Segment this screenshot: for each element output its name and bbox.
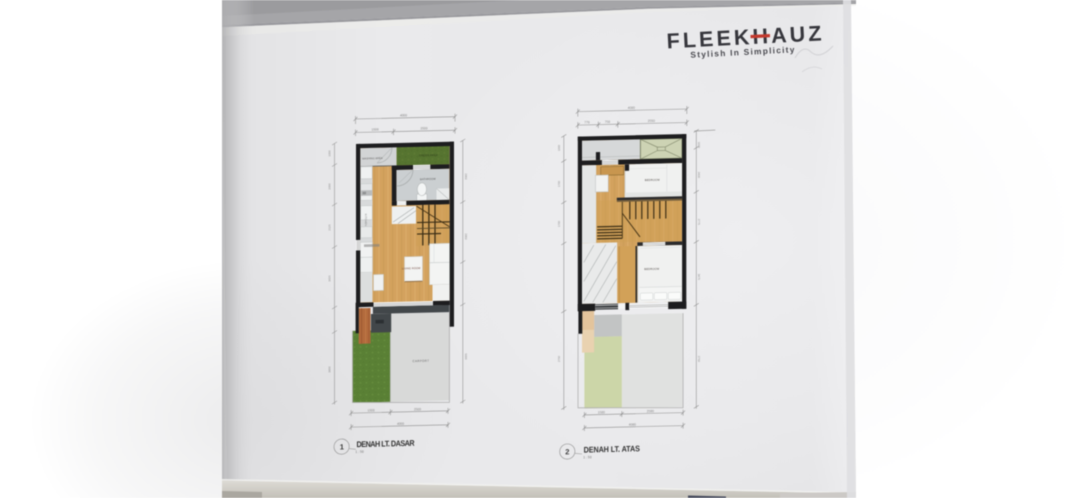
svg-text:2775: 2775 — [697, 219, 701, 226]
svg-text:1500: 1500 — [598, 410, 605, 414]
svg-text:DENAH LT. DASAR: DENAH LT. DASAR — [357, 438, 415, 449]
svg-text:750: 750 — [605, 120, 611, 124]
svg-text:BEDROOM: BEDROOM — [645, 178, 661, 182]
svg-text:770: 770 — [584, 120, 590, 124]
svg-text:2500: 2500 — [414, 407, 421, 411]
svg-text:4000: 4000 — [397, 422, 404, 426]
svg-text:2500: 2500 — [421, 126, 428, 130]
svg-text:3025: 3025 — [328, 275, 332, 282]
svg-text:2550: 2550 — [648, 119, 655, 123]
svg-text:1000: 1000 — [557, 144, 561, 151]
svg-text:1700: 1700 — [557, 180, 561, 187]
svg-text:2400: 2400 — [697, 172, 701, 179]
svg-text:2125: 2125 — [328, 224, 332, 231]
svg-text:BEDROOM: BEDROOM — [644, 267, 660, 271]
svg-text:5000: 5000 — [464, 353, 468, 360]
svg-text:4000: 4000 — [629, 423, 636, 427]
svg-text:KITCHEN: KITCHEN — [364, 214, 367, 226]
svg-text:2750: 2750 — [697, 356, 701, 363]
svg-text:1000: 1000 — [697, 142, 701, 149]
svg-text:2950: 2950 — [464, 173, 468, 180]
svg-text:BATHROOM: BATHROOM — [420, 177, 436, 181]
svg-text:1500: 1500 — [368, 408, 375, 412]
svg-text:2750: 2750 — [557, 355, 561, 362]
svg-text:4000: 4000 — [400, 113, 407, 117]
svg-text:1: 1 — [340, 442, 344, 451]
svg-text:2950: 2950 — [464, 233, 468, 240]
svg-text:2000: 2000 — [328, 183, 332, 190]
svg-text:3600: 3600 — [328, 366, 332, 373]
svg-text:3475: 3475 — [697, 274, 701, 281]
svg-text:1700: 1700 — [557, 220, 561, 227]
svg-text:2: 2 — [565, 447, 569, 456]
svg-text:CARPORT: CARPORT — [413, 359, 430, 363]
svg-text:1 : 50: 1 : 50 — [355, 450, 364, 454]
svg-text:4000: 4000 — [628, 106, 635, 110]
svg-text:2500: 2500 — [647, 409, 654, 413]
svg-text:LIVING ROOM: LIVING ROOM — [402, 266, 420, 270]
svg-text:1500: 1500 — [372, 127, 379, 131]
svg-text:1000: 1000 — [328, 150, 332, 157]
svg-text:GREEN AREA: GREEN AREA — [419, 153, 438, 157]
svg-text:WASHING AREA: WASHING AREA — [362, 157, 383, 160]
svg-text:DENAH LT. ATAS: DENAH LT. ATAS — [584, 444, 640, 455]
svg-text:1 : 50: 1 : 50 — [583, 455, 592, 459]
